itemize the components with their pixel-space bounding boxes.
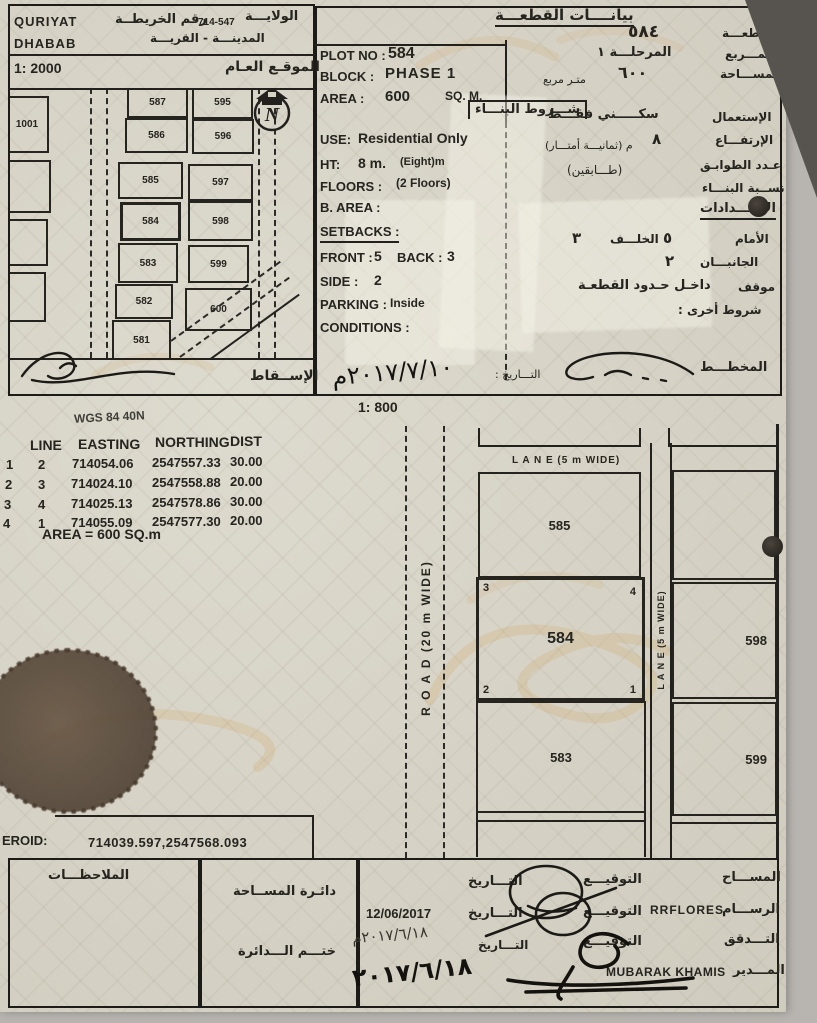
coord-cell: 1 [6, 457, 13, 472]
detail-plot-598: 598 [672, 582, 777, 699]
datum-label: WGS 84 40N [74, 408, 145, 426]
director-signature [478, 922, 713, 1002]
divider-line [8, 54, 315, 56]
scanned-krooki-document: QURIYAT DHABAB رقم الخريطــة 714-547 الو… [0, 0, 817, 1023]
col-line: LINE [30, 437, 62, 453]
coord-cell: 2547557.33 [152, 455, 221, 470]
detail-plot-585: 585 [478, 472, 641, 578]
coord-cell: 2547578.86 [152, 495, 221, 510]
surveyor-label: المســـاح [722, 870, 781, 885]
coord-cell: 20.00 [230, 513, 263, 528]
ar-front-label: الأمام [735, 232, 769, 246]
plot-no-label: PLOT NO : [320, 48, 386, 63]
dept-stamp-label: ختـــم الـــدائرة [238, 944, 336, 959]
road-dashed-line [405, 426, 407, 858]
ar-height-words: م (ثمانيـــة أمتـــار) [545, 139, 633, 152]
coord-cell: 714054.06 [72, 456, 133, 471]
arabic-title: بيانــــات القطعـــة [495, 6, 634, 27]
date-label: التـــاريخ : [495, 368, 540, 381]
projection-label: الإســقاط [250, 368, 318, 384]
detail-plot-584-selected: 584 3 4 2 1 [476, 577, 645, 701]
lane-top-label: L A N E (5 m WIDE) [512, 455, 620, 466]
ar-sides-label: الجانبـــان [700, 255, 758, 269]
back-value: 3 [447, 248, 455, 264]
setbacks-label: SETBACKS : [320, 224, 399, 243]
map-no-value: 714-547 [198, 17, 235, 28]
ar-use-value: سكـــــني فقـــط [548, 107, 659, 122]
parking-value: Inside [390, 296, 425, 310]
area-value: 600 [385, 88, 410, 105]
projection-signature [12, 344, 182, 396]
height-words: (Eight)m [400, 156, 445, 168]
block-label: BLOCK : [320, 69, 374, 84]
road-dashed-line [443, 426, 445, 858]
ar-back-label: الخلـــف [610, 232, 659, 246]
ar-floors-label: عـدد الطوابـق [700, 158, 781, 172]
general-location-label: الموقـع العـام [225, 59, 320, 75]
ar-sides-value: ٢ [665, 252, 674, 270]
ar-block-value: المرحلـــة ١ [597, 45, 672, 60]
ar-height-label: الإرتفـــاع [715, 133, 773, 147]
centroid-box-line [312, 815, 314, 858]
corner-4: 4 [630, 586, 636, 598]
ar-use-label: الإستعمال [712, 110, 771, 124]
height-label: HT: [320, 157, 340, 172]
ar-height-value: ٨ [652, 130, 661, 148]
ar-other-conditions-label: شروط أخرى : [678, 303, 762, 317]
ar-back-value: ٣ [572, 229, 581, 247]
coord-cell: 714025.13 [71, 496, 132, 511]
corner-1: 1 [630, 684, 636, 696]
coord-cell: 2547577.30 [152, 514, 221, 529]
wilaya-value: QURIYAT [14, 14, 77, 29]
ar-planner-label: المخطـــط [700, 360, 767, 375]
ar-parking-label: موقف [738, 280, 775, 294]
coord-cell: 2 [38, 457, 45, 472]
area-summary: AREA = 600 SQ.m [42, 526, 161, 542]
coord-cell: 714024.10 [71, 476, 132, 491]
corner-2: 2 [483, 684, 489, 696]
coord-cell: 20.00 [230, 474, 263, 489]
floors-label: FLOORS : [320, 179, 382, 194]
side-label: SIDE : [320, 274, 358, 289]
coord-cell: 4 [3, 516, 10, 531]
wilaya-label: الولايـــة [245, 9, 298, 24]
detail-plot-583: 583 [476, 701, 646, 813]
coord-cell: 30.00 [230, 454, 263, 469]
lane-top-line [668, 445, 777, 447]
col-northing: NORTHING [155, 434, 230, 450]
ar-parking-value: داخـل حـدود القطعـة [578, 278, 711, 293]
planner-signature [543, 348, 708, 394]
detail-line [644, 813, 646, 857]
town-village-label: المدينـــة - القريـــة [150, 31, 265, 45]
department-stamp [0, 650, 156, 812]
ar-front-value: ٥ [663, 229, 672, 247]
corner-3: 3 [483, 582, 489, 594]
divider-line [8, 88, 315, 90]
map-no-label: رقم الخريطــة [115, 12, 207, 27]
survey-dept-box [200, 858, 358, 1008]
main-scale: 1: 2000 [14, 60, 61, 76]
front-value: 5 [374, 248, 382, 264]
block-value: PHASE 1 [385, 65, 456, 82]
hole-punch [748, 196, 769, 217]
coord-cell: 3 [4, 497, 11, 512]
draftsman-label: الرســـام [722, 902, 780, 917]
notes-label: الملاحظـــات [48, 868, 129, 883]
ar-area-value: ٦٠٠ [618, 63, 647, 82]
conditions-label: CONDITIONS : [320, 320, 410, 335]
back-label: BACK : [397, 250, 443, 265]
coord-cell: 2 [5, 477, 12, 492]
plot-no-value: 584 [388, 45, 415, 63]
detail-plot-northeast [672, 470, 776, 580]
village-value: DHABAB [14, 36, 76, 51]
coord-cell: 3 [38, 477, 45, 492]
draftsman-name: RRFLORES [650, 903, 724, 917]
parking-label: PARKING : [320, 297, 387, 312]
detail-line [672, 822, 776, 824]
detail-plot-599: 599 [672, 702, 777, 816]
col-easting: EASTING [78, 436, 140, 452]
front-label: FRONT : [320, 250, 373, 265]
height-value: 8 m. [358, 155, 386, 171]
coord-cell: 2547558.88 [152, 475, 221, 490]
lane-top-tick [639, 428, 641, 445]
survey-dept-label: دائـرة المســاحة [233, 884, 336, 899]
paper-sheet: QURIYAT DHABAB رقم الخريطــة 714-547 الو… [0, 0, 786, 1012]
floors-value: (2 Floors) [396, 176, 451, 190]
ar-area-unit: متـر مربع [543, 73, 586, 86]
hole-punch [762, 536, 783, 557]
lane-top-tick [668, 428, 670, 445]
centroid-box-line [55, 815, 313, 817]
lane-line [650, 443, 652, 858]
ar-plot-value: ٥٨٤ [628, 22, 659, 42]
coord-cell: 4 [38, 497, 45, 512]
ar-floors-value: (طـــابقين) [567, 163, 622, 177]
draft-date: 12/06/2017 [366, 906, 431, 921]
detail-line [478, 820, 645, 822]
coord-cell: 30.00 [230, 494, 263, 509]
area-label: AREA : [320, 91, 364, 106]
lane-top-tick [478, 428, 480, 445]
checked-label: التـــدقق [724, 932, 780, 947]
detail-line [476, 813, 478, 857]
centroid-value: 714039.597,2547568.093 [88, 835, 247, 850]
use-value: Residential Only [358, 130, 468, 146]
use-label: USE: [320, 132, 351, 147]
built-area-label: B. AREA : [320, 200, 380, 215]
col-dist: DIST [230, 433, 262, 449]
ar-ratio-label: نســبة البنـــاء [702, 181, 785, 195]
centroid-label: EROID: [2, 833, 48, 848]
side-value: 2 [374, 272, 382, 288]
detail-scale: 1: 800 [358, 399, 398, 415]
director-label: المـــدير [733, 963, 785, 978]
lane-top-line [478, 445, 641, 447]
